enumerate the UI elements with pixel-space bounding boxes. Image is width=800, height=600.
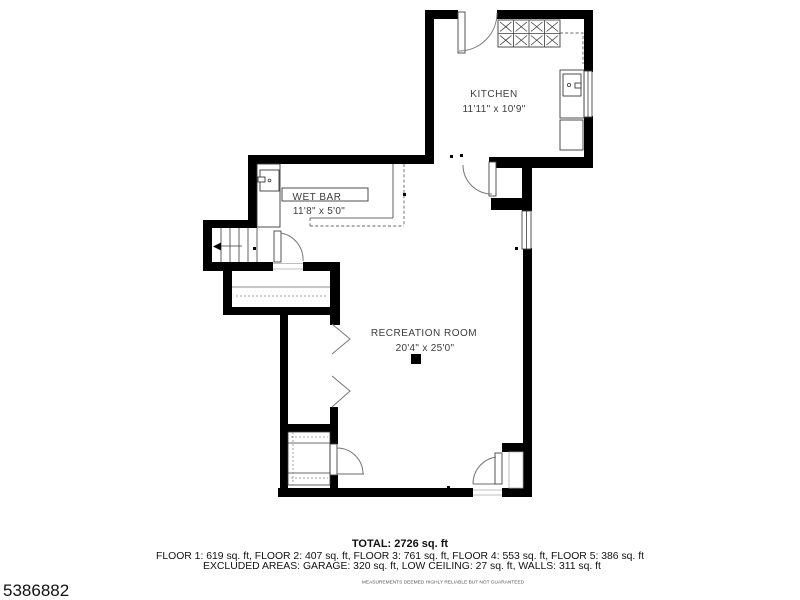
wall-segment	[280, 310, 288, 497]
wall-segment	[522, 157, 532, 211]
excluded-areas-text: EXCLUDED AREAS: GARAGE: 320 sq. ft, LOW …	[203, 561, 601, 572]
wall-segment	[523, 248, 532, 497]
wall-segment	[330, 262, 340, 325]
wall-segment	[491, 198, 522, 210]
storage-closet-interior	[232, 287, 330, 296]
total-area-text: TOTAL: 2726 sq. ft	[352, 538, 449, 550]
wall-segment	[425, 10, 434, 164]
counter-dashed-outline	[560, 33, 583, 64]
wet-bar-name: WET BAR	[293, 192, 342, 203]
wall-segment	[280, 424, 338, 432]
stove-cooktop	[498, 20, 560, 47]
room-label-recreation: RECREATION ROOM 20'4" x 25'0"	[371, 328, 477, 354]
wall-segment	[248, 155, 434, 164]
floor-plan-page: KITCHEN 11'11" x 10'9" WET BAR 11'8" x 5…	[0, 0, 800, 600]
hall-door	[273, 231, 303, 269]
room-label-kitchen: KITCHEN 11'11" x 10'9"	[462, 89, 525, 115]
kitchen-name: KITCHEN	[470, 89, 517, 100]
recreation-dims: 20'4" x 25'0"	[396, 343, 455, 354]
floor-plan-drawing: KITCHEN 11'11" x 10'9" WET BAR 11'8" x 5…	[0, 0, 800, 600]
room-label-wet-bar: WET BAR 11'8" x 5'0"	[293, 192, 346, 217]
wall-segment	[278, 488, 473, 497]
staircase	[213, 228, 257, 262]
utility-fixture-outline	[288, 432, 330, 485]
stair-direction-arrow	[213, 243, 242, 251]
kitchen-window	[584, 71, 592, 117]
wall-segment	[497, 10, 593, 19]
recreation-window	[522, 211, 531, 249]
wall-segment	[203, 262, 273, 271]
kitchen-fixtures	[498, 20, 584, 150]
area-summary: TOTAL: 2726 sq. ft FLOOR 1: 619 sq. ft, …	[156, 538, 644, 586]
closet-bifold-doors	[332, 324, 350, 407]
kitchen-dims: 11'11" x 10'9"	[462, 104, 525, 115]
mls-number: 5386882	[3, 581, 69, 600]
wet-bar-dims: 11'8" x 5'0"	[293, 206, 345, 217]
doors	[273, 12, 523, 495]
utility-room-interior	[288, 432, 330, 485]
kitchen-top-door	[458, 12, 497, 53]
kitchen-sink	[560, 70, 584, 118]
wall-segment	[248, 155, 257, 228]
disclaimer-text: MEASUREMENTS DEEMED HIGHLY RELIABLE BUT …	[362, 580, 525, 586]
walls	[203, 10, 593, 497]
wall-segment	[584, 10, 593, 72]
reference-ticks	[253, 154, 518, 489]
utility-door	[330, 444, 364, 475]
recreation-name: RECREATION ROOM	[371, 328, 477, 339]
support-column	[411, 354, 421, 364]
wet-bar-sink	[258, 170, 279, 191]
kitchen-cabinet	[560, 120, 583, 150]
wall-segment	[489, 157, 593, 168]
kitchen-bottom-door	[463, 162, 496, 196]
